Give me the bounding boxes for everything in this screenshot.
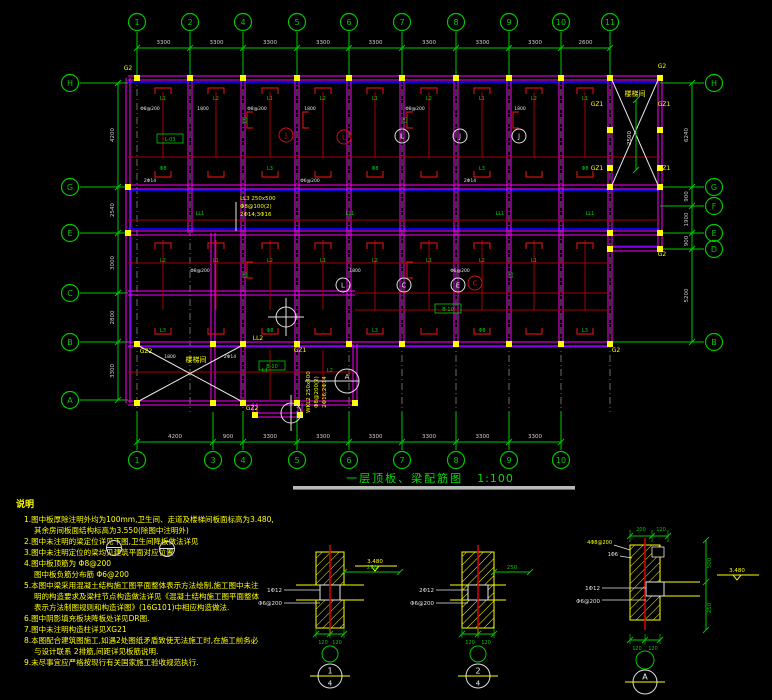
- svg-text:3300: 3300: [422, 40, 436, 46]
- svg-text:G: G: [67, 183, 73, 192]
- svg-text:L2: L2: [479, 258, 485, 264]
- svg-text:6: 6: [346, 456, 351, 465]
- svg-text:Φ8: Φ8: [371, 166, 378, 172]
- svg-text:Φ8@200: Φ8@200: [450, 268, 470, 274]
- svg-text:L2: L2: [531, 96, 537, 102]
- svg-text:G2: G2: [124, 65, 133, 72]
- svg-text:B-10: B-10: [266, 364, 278, 370]
- rebar-hook-marks: [155, 88, 593, 334]
- svg-text:2500: 2500: [627, 131, 633, 145]
- svg-text:11: 11: [605, 18, 615, 27]
- svg-text:250: 250: [707, 602, 713, 613]
- note-line: 6.图中阴影填充板块降板处详见DR图.: [16, 613, 284, 624]
- svg-text:L: L: [342, 134, 346, 142]
- svg-text:L5: L5: [243, 272, 249, 278]
- svg-text:E: E: [67, 229, 72, 238]
- svg-text:L2: L2: [213, 96, 219, 102]
- stair-x-braces: 2500楼梯间楼梯间: [139, 80, 658, 401]
- svg-text:9: 9: [506, 18, 511, 27]
- svg-text:C: C: [473, 280, 478, 288]
- svg-text:L1: L1: [320, 258, 326, 264]
- svg-text:Φ8: Φ8: [266, 328, 273, 334]
- svg-text:L-03: L-03: [165, 137, 176, 143]
- svg-text:Φ8@200: Φ8@200: [140, 106, 160, 112]
- svg-text:3300: 3300: [263, 40, 277, 46]
- svg-text:2Φ14: 2Φ14: [464, 178, 476, 184]
- svg-text:B-10: B-10: [442, 307, 454, 313]
- svg-text:1800: 1800: [349, 268, 361, 274]
- svg-text:J: J: [517, 133, 520, 141]
- svg-text:8: 8: [453, 456, 458, 465]
- svg-text:L2: L2: [320, 96, 326, 102]
- svg-text:9: 9: [506, 456, 511, 465]
- svg-text:Φ6@200: Φ6@200: [576, 599, 600, 605]
- svg-text:120: 120: [632, 646, 642, 652]
- svg-text:Φ8@200: Φ8@200: [405, 106, 425, 112]
- svg-text:L2: L2: [372, 258, 378, 264]
- svg-text:LL1: LL1: [346, 211, 355, 217]
- note-line: 1.图中板厚除注明外均为100mm,卫生间、走道及楼梯间板面标高为3.480,: [16, 514, 284, 525]
- svg-text:2800: 2800: [110, 310, 116, 324]
- svg-text:1: 1: [327, 667, 332, 676]
- svg-text:L5: L5: [243, 117, 249, 123]
- svg-text:2: 2: [187, 18, 192, 27]
- svg-text:4Φ8@200: 4Φ8@200: [587, 540, 612, 546]
- note-line: 表示方法制图规则和构造详图》(16G101)中相应构造做法.: [16, 602, 284, 613]
- section-ref-icon: [106, 540, 122, 556]
- svg-text:B: B: [711, 338, 717, 347]
- svg-text:G2: G2: [658, 63, 667, 70]
- svg-text:GZ2: GZ2: [246, 405, 259, 412]
- svg-text:3300: 3300: [369, 434, 383, 440]
- svg-text:8: 8: [453, 18, 458, 27]
- svg-text:GZ1: GZ1: [658, 101, 671, 108]
- svg-text:G2: G2: [612, 347, 621, 354]
- svg-text:L2: L2: [267, 258, 273, 264]
- svg-text:Φ8@200: Φ8@200: [247, 106, 267, 112]
- svg-text:C: C: [402, 282, 407, 290]
- detail-2: 2Φ12Φ6@20025012012024: [410, 545, 533, 688]
- svg-text:Φ8: Φ8: [581, 166, 588, 172]
- svg-text:LL1: LL1: [496, 211, 505, 217]
- svg-text:GZ1: GZ1: [294, 347, 307, 354]
- svg-text:4: 4: [476, 680, 481, 688]
- notes-title: 说明: [16, 500, 284, 511]
- svg-text:2Φ16;2Φ14: 2Φ16;2Φ14: [322, 376, 328, 408]
- svg-text:900: 900: [684, 191, 690, 202]
- svg-text:5200: 5200: [684, 288, 690, 302]
- svg-text:3300: 3300: [157, 40, 171, 46]
- svg-text:L3: L3: [479, 166, 485, 172]
- svg-text:4: 4: [328, 680, 333, 688]
- grid-axes: [80, 32, 704, 450]
- svg-text:J: J: [458, 133, 461, 141]
- note-line: 与设计联系 2排筋,间距详见板筋说明.: [16, 646, 284, 657]
- svg-text:L: L: [400, 133, 404, 141]
- svg-text:120: 120: [465, 640, 475, 646]
- svg-text:A: A: [642, 673, 648, 682]
- svg-text:L: L: [341, 282, 345, 290]
- notes-block: 说明 1.图中板厚除注明外均为100mm,卫生间、走道及楼梯间板面标高为3.48…: [16, 500, 284, 668]
- svg-text:120: 120: [656, 527, 666, 533]
- svg-text:3: 3: [210, 456, 215, 465]
- svg-text:7: 7: [399, 18, 404, 27]
- svg-text:L2: L2: [160, 258, 166, 264]
- note-line: 5.本图中梁采用混凝土结构施工图平面整体表示方法绘制,施工图中未注: [16, 580, 284, 591]
- svg-text:L3: L3: [582, 328, 588, 334]
- svg-text:200: 200: [636, 527, 646, 533]
- svg-text:L5: L5: [509, 272, 515, 278]
- svg-text:L3: L3: [160, 328, 166, 334]
- svg-text:J: J: [284, 132, 287, 140]
- svg-text:3300: 3300: [476, 434, 490, 440]
- plan-section-cuts: A: [268, 298, 359, 431]
- svg-text:4: 4: [240, 18, 245, 27]
- svg-text:1800: 1800: [164, 354, 176, 360]
- note-line: 4.图中板顶筋为 Φ8@200: [16, 558, 284, 569]
- svg-text:500: 500: [707, 557, 713, 568]
- svg-text:2: 2: [475, 667, 480, 676]
- svg-text:5: 5: [294, 456, 299, 465]
- svg-text:1800: 1800: [304, 106, 316, 112]
- svg-text:1: 1: [134, 456, 139, 465]
- svg-text:900: 900: [684, 235, 690, 246]
- svg-text:120: 120: [318, 640, 328, 646]
- svg-text:楼梯间: 楼梯间: [625, 89, 646, 98]
- dimensions: 3300330033003300330033003300330026004200…: [110, 40, 695, 445]
- svg-text:120: 120: [332, 640, 342, 646]
- svg-text:3300: 3300: [210, 40, 224, 46]
- svg-text:1800: 1800: [197, 106, 209, 112]
- svg-text:4200: 4200: [168, 434, 182, 440]
- svg-text:3000: 3000: [110, 256, 116, 270]
- svg-text:L3: L3: [267, 166, 273, 172]
- svg-text:LL1: LL1: [586, 211, 595, 217]
- svg-text:250: 250: [367, 565, 378, 571]
- svg-text:E: E: [711, 229, 716, 238]
- note-line: 7.图中未注明构造柱详见XG21: [16, 624, 284, 635]
- svg-text:A: A: [67, 396, 73, 405]
- note-line: 明的构造要求及梁柱节点构造做法详见《混凝土结构施工图平面整体: [16, 591, 284, 602]
- svg-text:1Φ12: 1Φ12: [585, 586, 600, 592]
- svg-text:Φ8@200(2): Φ8@200(2): [314, 376, 320, 408]
- detail-A: 2001204Φ8@2001Φ61Φ12Φ6@2005002503.480120…: [576, 527, 759, 694]
- svg-text:1800: 1800: [514, 106, 526, 112]
- svg-text:2Φ14: 2Φ14: [224, 354, 236, 360]
- svg-text:LL3 250x500: LL3 250x500: [240, 196, 276, 202]
- svg-text:C: C: [67, 289, 73, 298]
- notes-lines: 1.图中板厚除注明外均为100mm,卫生间、走道及楼梯间板面标高为3.480,其…: [16, 514, 284, 668]
- svg-text:4200: 4200: [110, 128, 116, 142]
- svg-text:LL1: LL1: [196, 211, 205, 217]
- svg-text:2Φ12: 2Φ12: [419, 588, 434, 594]
- svg-text:3300: 3300: [369, 40, 383, 46]
- drawing-title: 一层顶板、梁配筋图1:100: [270, 470, 590, 486]
- svg-text:Φ6@200: Φ6@200: [300, 178, 320, 184]
- note-line: 8.本图配合建筑图施工,如遇2处图纸矛盾致使无法施工时,在施工前务必: [16, 635, 284, 646]
- svg-text:L2: L2: [426, 96, 432, 102]
- svg-text:3300: 3300: [422, 434, 436, 440]
- svg-text:3300: 3300: [316, 40, 330, 46]
- svg-text:10: 10: [556, 18, 566, 27]
- svg-text:2Φ14;3Φ16: 2Φ14;3Φ16: [240, 212, 272, 218]
- svg-text:3300: 3300: [476, 40, 490, 46]
- cad-drawing-viewport: 1245678910111345678910HGECBAHGFEDB330033…: [0, 0, 772, 700]
- svg-text:6: 6: [346, 18, 351, 27]
- svg-text:250: 250: [507, 565, 518, 571]
- svg-text:GZ1: GZ1: [591, 101, 604, 108]
- svg-text:900: 900: [223, 434, 234, 440]
- svg-text:GZ1: GZ1: [591, 165, 604, 172]
- title-underline: [293, 486, 575, 490]
- svg-text:F: F: [712, 202, 717, 211]
- svg-text:2Φ14: 2Φ14: [144, 178, 156, 184]
- svg-text:G2: G2: [658, 251, 667, 258]
- svg-text:GZ1: GZ1: [658, 165, 671, 172]
- svg-text:L1: L1: [160, 96, 166, 102]
- svg-text:Φ8: Φ8: [159, 166, 166, 172]
- svg-text:3.480: 3.480: [729, 568, 745, 574]
- svg-text:1Φ6: 1Φ6: [608, 552, 618, 558]
- svg-text:1900: 1900: [684, 212, 690, 226]
- slab-edge-lines: [128, 82, 660, 347]
- svg-text:L1: L1: [213, 258, 219, 264]
- svg-text:L1: L1: [267, 96, 273, 102]
- svg-text:L1: L1: [479, 96, 485, 102]
- column-squares: [125, 75, 663, 418]
- svg-text:2540: 2540: [110, 203, 116, 217]
- svg-text:3300: 3300: [263, 434, 277, 440]
- svg-text:Φ8@100(2): Φ8@100(2): [240, 204, 272, 210]
- svg-text:6240: 6240: [684, 128, 690, 142]
- svg-text:Φ8: Φ8: [478, 328, 485, 334]
- note-line: 2.图中未注明的梁定位详见下图,卫生间降板做法详见: [16, 536, 284, 547]
- note-line: 图中板负筋分布筋 Φ6@200: [16, 569, 284, 580]
- svg-text:Φ8@200: Φ8@200: [190, 268, 210, 274]
- svg-text:Φ6@200: Φ6@200: [410, 601, 434, 607]
- svg-text:G: G: [711, 183, 717, 192]
- svg-text:L1: L1: [531, 258, 537, 264]
- drawing-scale: 1:100: [477, 472, 514, 485]
- svg-text:3300: 3300: [528, 434, 542, 440]
- svg-text:4: 4: [240, 456, 245, 465]
- beams-magenta: [126, 76, 662, 417]
- svg-text:2600: 2600: [579, 40, 593, 46]
- svg-text:120: 120: [648, 646, 658, 652]
- section-ref-icon: [159, 541, 175, 557]
- svg-text:L3: L3: [372, 328, 378, 334]
- svg-text:3300: 3300: [110, 364, 116, 378]
- svg-text:L5: L5: [403, 117, 409, 123]
- svg-text:10: 10: [556, 456, 566, 465]
- note-line: 其余房间板面结构标高为3.550(除图中注明外): [16, 525, 284, 536]
- svg-text:GZ2: GZ2: [140, 348, 153, 355]
- svg-text:5: 5: [294, 18, 299, 27]
- svg-text:3300: 3300: [316, 434, 330, 440]
- svg-text:H: H: [67, 79, 73, 88]
- svg-text:1: 1: [134, 18, 139, 27]
- svg-text:E: E: [456, 282, 460, 290]
- note-line: 3.图中未注明定位的梁均见建筑平面对应位置: [16, 547, 284, 558]
- svg-text:L1: L1: [426, 258, 432, 264]
- svg-text:3300: 3300: [528, 40, 542, 46]
- svg-text:7: 7: [399, 456, 404, 465]
- svg-text:L2: L2: [327, 368, 333, 374]
- svg-text:D: D: [711, 245, 717, 254]
- svg-text:WKL2 250x400: WKL2 250x400: [306, 371, 312, 413]
- svg-text:A: A: [345, 373, 350, 381]
- svg-text:L1: L1: [372, 96, 378, 102]
- svg-text:LL2: LL2: [253, 335, 264, 342]
- svg-text:L1: L1: [582, 96, 588, 102]
- svg-text:B: B: [67, 338, 73, 347]
- svg-text:H: H: [711, 79, 717, 88]
- note-line: 9.未尽事宜应严格按现行有关国家施工验收规范执行.: [16, 657, 284, 668]
- drawing-title-text: 一层顶板、梁配筋图: [346, 472, 463, 485]
- svg-text:楼梯间: 楼梯间: [186, 355, 207, 364]
- svg-text:120: 120: [481, 640, 491, 646]
